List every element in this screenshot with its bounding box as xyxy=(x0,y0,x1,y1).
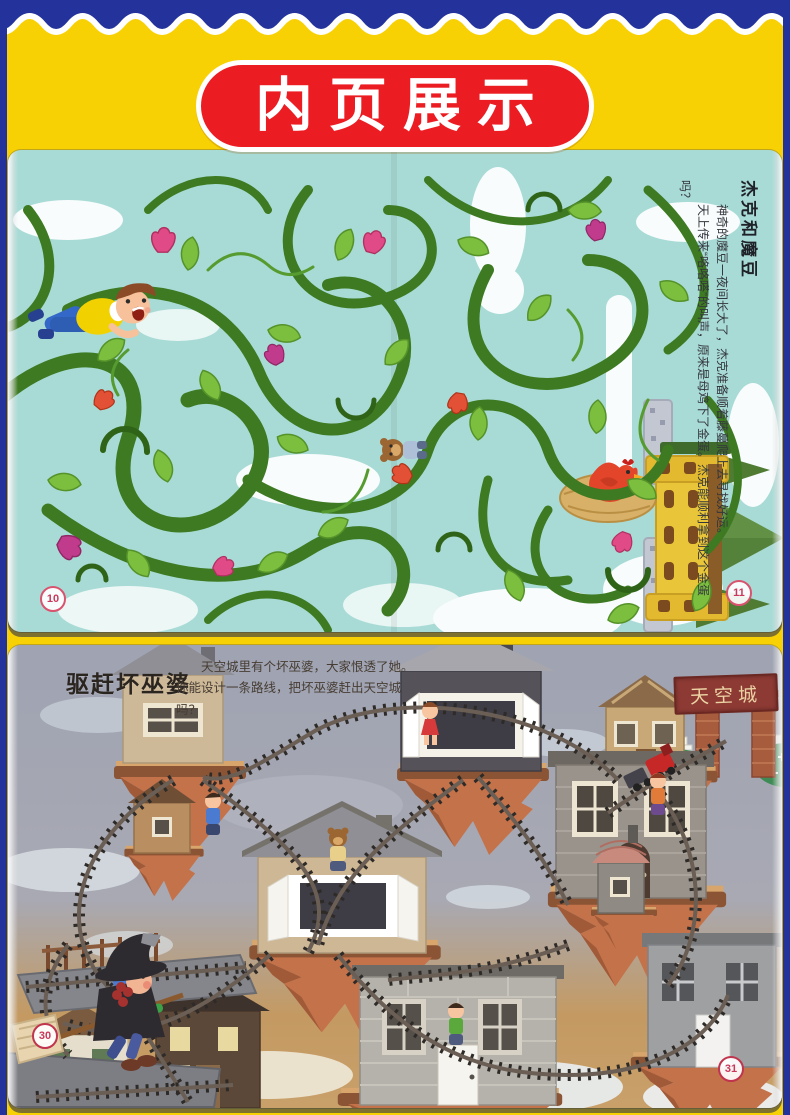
maze-page-witch: 驱赶坏巫婆 天空城里有个坏巫婆，大家恨透了她。你能设计一条路线，把坏巫婆赶出天空… xyxy=(8,645,782,1108)
maze-page-beanstalk: 杰克和魔豆 神奇的魔豆一夜间长大了，杰克准备顺着藤蔓爬上去寻找好运。 天上传来“… xyxy=(8,150,782,632)
section-title: 内页展示 xyxy=(255,77,551,135)
story-paragraph: 神奇的魔豆一夜间长大了，杰克准备顺着藤蔓爬上去寻找好运。 xyxy=(712,180,731,610)
sky-city-sign: 天空城 xyxy=(673,673,778,715)
maze-description: 天空城里有个坏巫婆，大家恨透了她。你能设计一条路线，把坏巫婆赶出天空城吗？ xyxy=(176,657,418,721)
kid-green xyxy=(448,1003,464,1045)
left-border xyxy=(0,0,7,1115)
maze-title: 驱赶坏巫婆 xyxy=(66,665,191,699)
story-block: 杰克和魔豆 神奇的魔豆一夜间长大了，杰克准备顺着藤蔓爬上去寻找好运。 天上传来“… xyxy=(653,180,763,610)
bear-illustration xyxy=(328,828,349,872)
house-concrete xyxy=(642,933,782,1067)
page-number-badge: 31 xyxy=(718,1056,744,1082)
right-border xyxy=(783,0,790,1115)
page-number-badge: 10 xyxy=(40,586,66,612)
kid-orange xyxy=(650,773,666,815)
teddy-bear-illustration xyxy=(380,438,427,462)
page-number-badge: 30 xyxy=(32,1023,58,1049)
top-wave-band xyxy=(0,0,790,52)
kid-climbing xyxy=(205,793,221,835)
section-header: 内页展示 xyxy=(196,60,594,152)
page-number-badge: 11 xyxy=(726,580,752,606)
maze-title: 杰克和魔豆 xyxy=(738,180,763,610)
story-paragraph: 天上传来“咯咯嗒”的叫声，原来是母鸡下了金蛋。杰克能顺利拿到这个金蛋吗？ xyxy=(675,180,712,610)
